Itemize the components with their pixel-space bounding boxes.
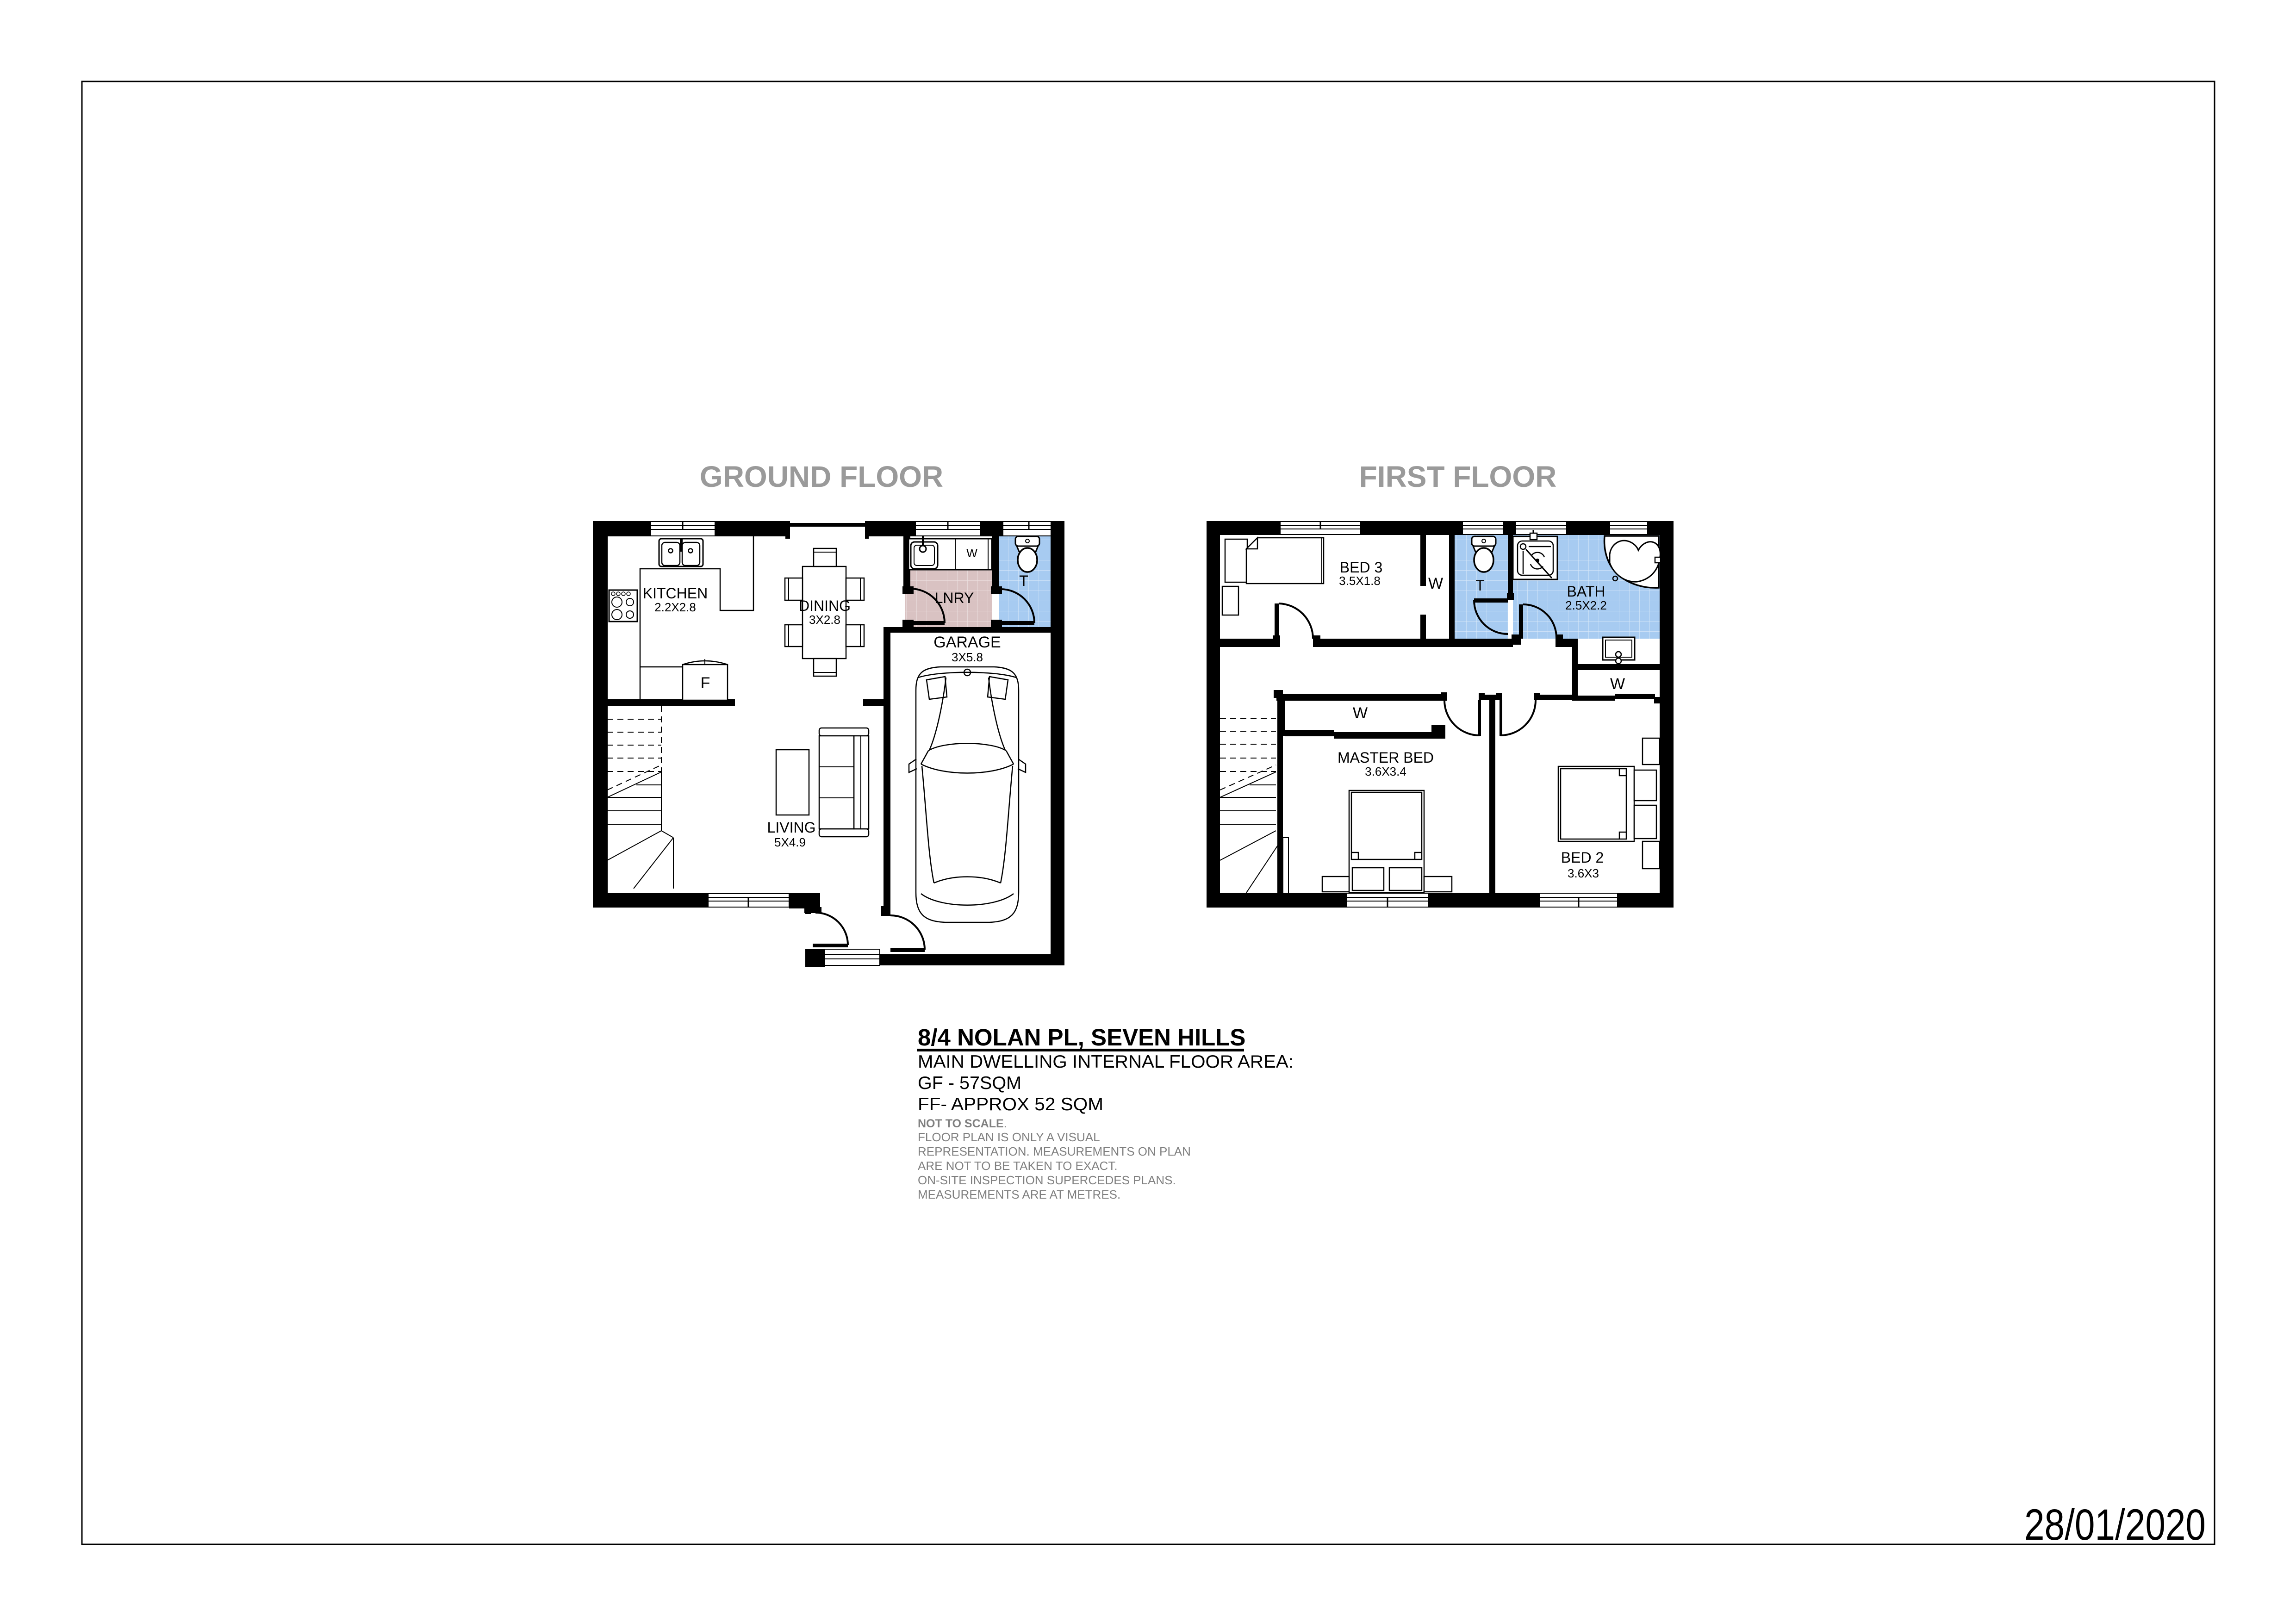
svg-text:3X5.8: 3X5.8 xyxy=(952,650,983,664)
svg-text:MAIN DWELLING INTERNAL FLOOR A: MAIN DWELLING INTERNAL FLOOR AREA: xyxy=(918,1052,1294,1072)
svg-text:2.5X2.2: 2.5X2.2 xyxy=(1565,598,1607,612)
svg-text:MEASUREMENTS ARE AT METRES.: MEASUREMENTS ARE AT METRES. xyxy=(918,1188,1120,1201)
svg-text:W: W xyxy=(1428,575,1443,592)
svg-text:28/01/2020: 28/01/2020 xyxy=(2024,1500,2206,1549)
svg-text:MASTER BED: MASTER BED xyxy=(1338,749,1434,766)
svg-text:FIRST FLOOR: FIRST FLOOR xyxy=(1359,460,1557,493)
svg-text:BED 3: BED 3 xyxy=(1340,559,1382,576)
svg-text:W: W xyxy=(966,547,977,560)
svg-text:FF- APPROX 52 SQM: FF- APPROX 52 SQM xyxy=(918,1095,1103,1114)
svg-text:W: W xyxy=(1610,675,1625,693)
svg-text:3.6X3.4: 3.6X3.4 xyxy=(1365,765,1406,778)
svg-text:3.5X1.8: 3.5X1.8 xyxy=(1339,574,1381,588)
svg-text:DINING: DINING xyxy=(799,597,851,614)
svg-text:BED 2: BED 2 xyxy=(1561,849,1604,866)
svg-text:F: F xyxy=(701,674,710,692)
svg-text:3X2.8: 3X2.8 xyxy=(809,613,840,627)
svg-text:NOT TO SCALE.: NOT TO SCALE. xyxy=(918,1117,1007,1130)
svg-text:GF - 57SQM: GF - 57SQM xyxy=(918,1073,1021,1093)
svg-text:LIVING: LIVING xyxy=(767,819,816,836)
svg-text:3.6X3: 3.6X3 xyxy=(1568,866,1599,880)
svg-text:BATH: BATH xyxy=(1567,583,1605,600)
svg-text:T: T xyxy=(1475,577,1485,594)
svg-text:8/4 NOLAN PL, SEVEN HILLS: 8/4 NOLAN PL, SEVEN HILLS xyxy=(918,1024,1245,1051)
svg-text:5X4.9: 5X4.9 xyxy=(774,835,806,849)
svg-text:FLOOR PLAN IS ONLY A VISUAL: FLOOR PLAN IS ONLY A VISUAL xyxy=(918,1130,1100,1144)
svg-text:GARAGE: GARAGE xyxy=(933,634,1001,651)
svg-text:ARE NOT TO BE TAKEN TO EXACT.: ARE NOT TO BE TAKEN TO EXACT. xyxy=(918,1159,1118,1173)
svg-text:W: W xyxy=(1353,704,1368,722)
svg-text:LNRY: LNRY xyxy=(935,590,974,606)
svg-text:KITCHEN: KITCHEN xyxy=(643,585,708,602)
svg-text:T: T xyxy=(1019,572,1028,589)
svg-text:GROUND FLOOR: GROUND FLOOR xyxy=(700,460,943,493)
svg-text:REPRESENTATION. MEASUREMENTS O: REPRESENTATION. MEASUREMENTS ON PLAN xyxy=(918,1144,1191,1158)
svg-text:ON-SITE INSPECTION SUPERCEDES: ON-SITE INSPECTION SUPERCEDES PLANS. xyxy=(918,1173,1176,1187)
svg-text:2.2X2.8: 2.2X2.8 xyxy=(654,600,696,614)
